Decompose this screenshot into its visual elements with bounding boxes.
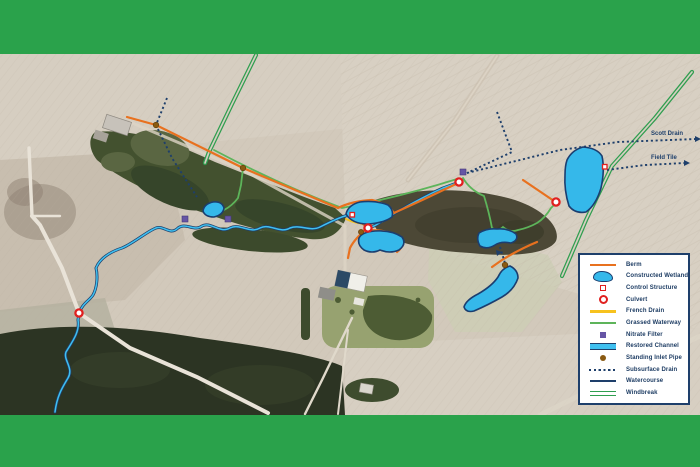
legend-item-watercourse: Watercourse [586,376,686,386]
control-structure-marker [603,165,608,170]
bottom-border-band [0,415,700,467]
legend-label: Watercourse [626,378,663,384]
legend-item-standing-inlet-pipe: Standing Inlet Pipe [586,353,686,363]
culvert-marker [364,224,371,231]
legend-label: French Drain [626,308,664,314]
standing-inlet-pipe-marker [358,229,363,234]
culvert-marker [552,198,559,205]
field-tile-label: Field Tile [651,155,678,161]
legend-item-nitrate-filter: Nitrate Filter [586,330,686,340]
nitrate-filter-marker [182,216,188,222]
map-legend: Berm Constructed Wetland Control Structu… [578,253,690,405]
legend-item-berm: Berm [586,260,686,270]
legend-item-grassed-waterway: Grassed Waterway [586,318,686,328]
standing-inlet-pipe-marker [153,122,159,128]
nitrate-filter-marker [225,216,231,222]
legend-label: Culvert [626,297,647,303]
top-border-band [0,0,700,54]
wetland-blob-icon [586,271,620,282]
legend-item-windbreak: Windbreak [586,388,686,398]
watercourse-line-icon [586,380,620,382]
subsurface-drain-dotted-icon [586,369,620,371]
legend-item-constructed-wetland: Constructed Wetland [586,271,686,281]
legend-label: Subsurface Drain [626,367,677,373]
scott-drain-label: Scott Drain [651,131,683,137]
inlet-pipe-dot-icon [586,355,620,361]
grassed-waterway-line-icon [586,322,620,324]
berm-line-icon [586,264,620,266]
culvert-marker [455,178,462,185]
legend-label: Restored Channel [626,343,679,349]
legend-label: Standing Inlet Pipe [626,355,682,361]
legend-label: Control Structure [626,285,677,291]
legend-label: Constructed Wetland [626,273,688,279]
legend-item-subsurface-drain: Subsurface Drain [586,365,686,375]
french-drain-line-icon [586,310,620,312]
standing-inlet-pipe-marker [502,262,508,268]
standing-inlet-pipe-marker [240,165,246,171]
legend-item-culvert: Culvert [586,295,686,305]
nitrate-filter-marker [460,169,466,175]
legend-item-french-drain: French Drain [586,306,686,316]
legend-label: Grassed Waterway [626,320,681,326]
control-structure-icon [586,285,620,291]
restored-channel-band-icon [586,343,620,350]
culvert-marker [75,309,82,316]
legend-label: Windbreak [626,390,658,396]
control-structure-marker [350,213,355,218]
legend-label: Berm [626,262,642,268]
culvert-ring-icon [586,295,620,304]
map-figure: Scott Drain Field Tile Berm Constructed … [0,0,700,467]
windbreak-double-line-icon [586,391,620,396]
legend-item-restored-channel: Restored Channel [586,341,686,351]
nitrate-filter-square-icon [586,332,620,338]
legend-item-control-structure: Control Structure [586,283,686,293]
legend-label: Nitrate Filter [626,332,663,338]
